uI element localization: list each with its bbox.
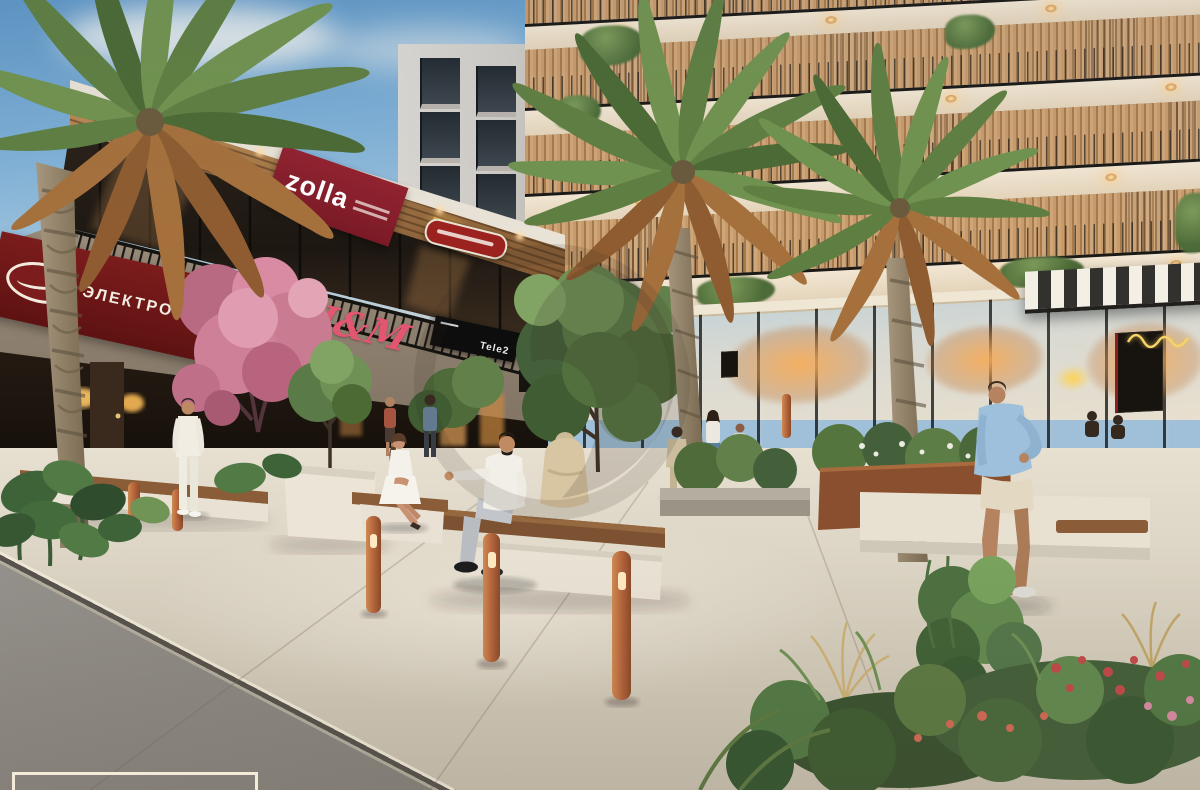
person-standing-red-top xyxy=(384,397,396,456)
architectural-render-plaza: ЭЛЕКТРОНИКА zolla H&M Tele2 .fg{fill:#5f… xyxy=(0,0,1200,790)
partial-frame-outline xyxy=(12,772,258,790)
scenery-layer: .fg{fill:#5f7f42;}.fg2{fill:#71934f;}.fd… xyxy=(0,0,1200,790)
neon-script-sign xyxy=(1128,335,1188,347)
cafe-guests xyxy=(1085,411,1125,439)
